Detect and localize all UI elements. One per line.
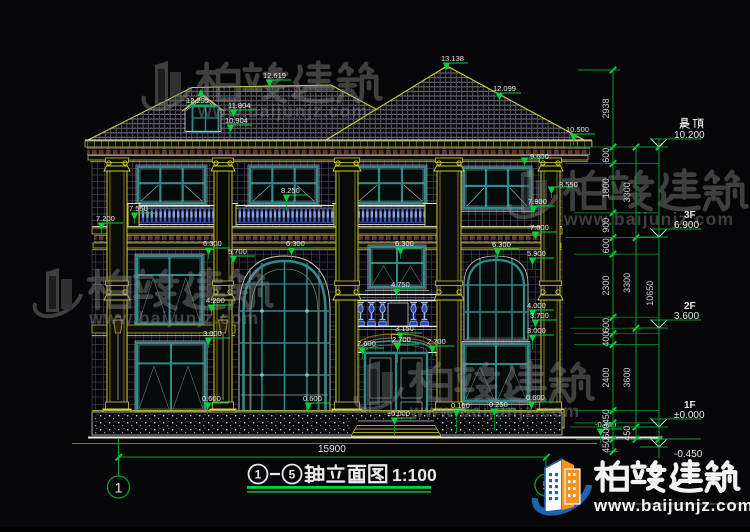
- svg-text:2300: 2300: [601, 276, 611, 296]
- svg-text:1800: 1800: [601, 178, 611, 198]
- svg-text:7.550: 7.550: [129, 204, 148, 213]
- svg-text:12.619: 12.619: [263, 71, 286, 80]
- svg-text:0.250: 0.250: [489, 400, 508, 409]
- svg-text:5.900: 5.900: [527, 249, 546, 258]
- svg-text:11.804: 11.804: [228, 101, 250, 110]
- svg-text:1: 1: [255, 468, 262, 482]
- svg-text:3600: 3600: [622, 368, 632, 388]
- svg-text:450: 450: [601, 438, 611, 453]
- svg-text:10.200: 10.200: [674, 130, 705, 141]
- svg-text:10.500: 10.500: [566, 125, 589, 134]
- svg-text:3.700: 3.700: [530, 311, 549, 320]
- svg-text:7.800: 7.800: [528, 197, 547, 206]
- svg-text:7.200: 7.200: [96, 214, 115, 223]
- svg-text:2400: 2400: [601, 368, 611, 388]
- svg-text:0.150: 0.150: [451, 401, 470, 410]
- svg-text:3300: 3300: [622, 273, 632, 293]
- svg-text:www.baijunjz.com: www.baijunjz.com: [88, 308, 259, 328]
- svg-text:±0.000: ±0.000: [674, 410, 705, 421]
- svg-text:1: 1: [115, 480, 123, 496]
- svg-text:6.300: 6.300: [286, 239, 305, 248]
- svg-text:3.150: 3.150: [395, 324, 414, 333]
- svg-text:3.000: 3.000: [527, 326, 546, 335]
- svg-text:2938: 2938: [601, 98, 611, 118]
- svg-text:±0.000: ±0.000: [387, 409, 410, 418]
- svg-text:4.000: 4.000: [527, 301, 546, 310]
- svg-text:900: 900: [601, 218, 611, 233]
- svg-text:0.600: 0.600: [202, 394, 221, 403]
- svg-text:5: 5: [289, 468, 296, 482]
- svg-text:8.550: 8.550: [559, 180, 578, 189]
- svg-text:-0.450: -0.450: [674, 449, 703, 460]
- svg-text:400: 400: [601, 332, 611, 347]
- svg-text:600: 600: [601, 424, 611, 439]
- svg-text:450: 450: [601, 409, 611, 424]
- svg-text:2.700: 2.700: [427, 337, 446, 346]
- svg-text:0.600: 0.600: [303, 394, 322, 403]
- svg-text:600: 600: [601, 148, 611, 163]
- svg-text:13.138: 13.138: [441, 54, 464, 63]
- svg-text:5.700: 5.700: [228, 247, 247, 256]
- svg-text:10.904: 10.904: [225, 116, 248, 125]
- svg-text:6.900: 6.900: [674, 220, 699, 231]
- svg-text:3300: 3300: [622, 182, 632, 202]
- svg-text:1:100: 1:100: [392, 465, 437, 485]
- svg-text:8.250: 8.250: [281, 186, 300, 195]
- svg-text:3.000: 3.000: [203, 329, 222, 338]
- svg-text:3.600: 3.600: [674, 311, 699, 322]
- svg-text:www.baijunjz.com: www.baijunjz.com: [197, 101, 368, 121]
- svg-text:15900: 15900: [318, 444, 346, 455]
- svg-text:600: 600: [601, 318, 611, 333]
- svg-text:www.baijunjz.com: www.baijunjz.com: [593, 496, 750, 515]
- svg-text:0.600: 0.600: [526, 393, 545, 402]
- svg-text:2.600: 2.600: [357, 339, 376, 348]
- svg-text:4.200: 4.200: [206, 296, 225, 305]
- svg-text:6.300: 6.300: [492, 240, 511, 249]
- svg-text:2.700: 2.700: [392, 335, 411, 344]
- svg-text:6.300: 6.300: [203, 239, 222, 248]
- svg-text:12.295: 12.295: [186, 96, 209, 105]
- svg-text:600: 600: [601, 238, 611, 253]
- svg-text:9.600: 9.600: [530, 152, 549, 161]
- svg-text:6.300: 6.300: [395, 239, 414, 248]
- svg-text:www.baijunjz.com: www.baijunjz.com: [563, 209, 734, 229]
- svg-text:12.099: 12.099: [493, 84, 516, 93]
- svg-text:10650: 10650: [645, 281, 655, 306]
- svg-text:4.750: 4.750: [391, 280, 410, 289]
- svg-text:7.000: 7.000: [530, 223, 549, 232]
- svg-text:450: 450: [622, 426, 632, 441]
